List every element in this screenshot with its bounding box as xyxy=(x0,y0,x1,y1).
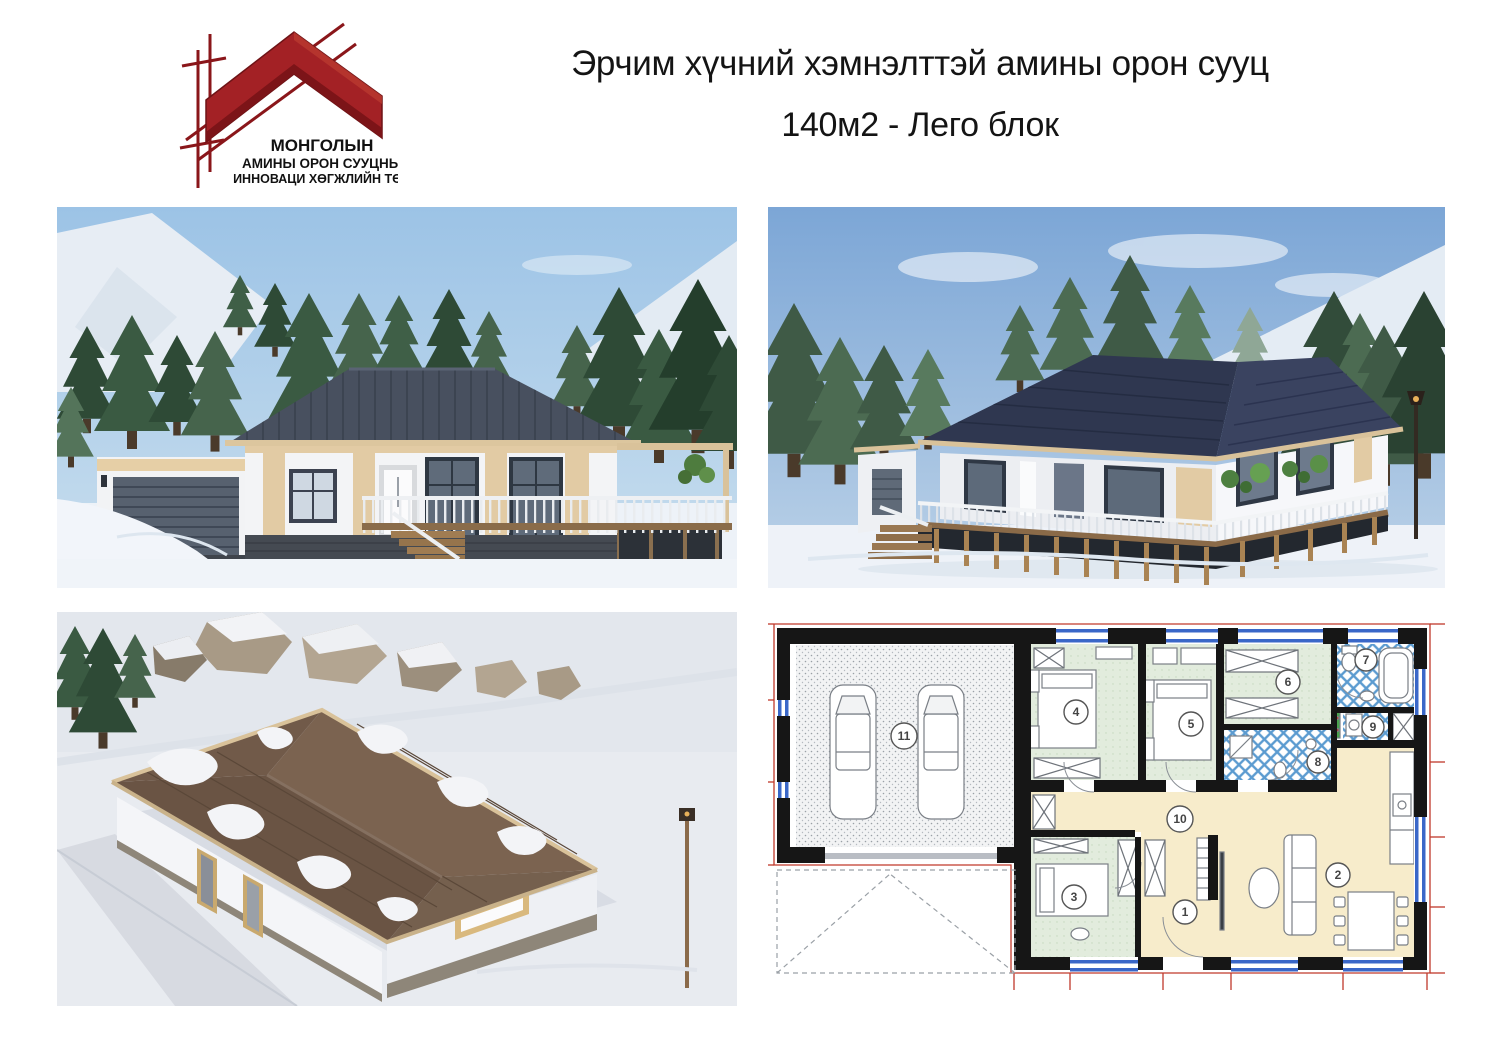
aerial-scene xyxy=(57,612,737,1006)
garage-door-line xyxy=(825,853,997,859)
room-badge-10: 10 xyxy=(1167,806,1193,832)
roof-fascia xyxy=(225,440,641,446)
deck-railing xyxy=(362,496,732,533)
room-number-4: 4 xyxy=(1073,705,1080,719)
window xyxy=(1238,628,1323,644)
room-number-8: 8 xyxy=(1315,755,1322,769)
window xyxy=(1414,817,1427,902)
brochure-page: МОНГОЛЫН АМИНЫ ОРОН СУУЦНЫ ИННОВАЦИ ХӨГЖ… xyxy=(0,0,1500,1060)
room-number-7: 7 xyxy=(1363,653,1370,667)
room-number-10: 10 xyxy=(1173,812,1187,826)
perspective-scene xyxy=(768,207,1445,588)
room-badge-3: 3 xyxy=(1062,885,1086,909)
room-number-6: 6 xyxy=(1285,675,1292,689)
render-aerial-panel xyxy=(57,612,737,1006)
dresser-5 xyxy=(1181,648,1217,664)
room-number-9: 9 xyxy=(1370,720,1377,734)
nightstand-5 xyxy=(1153,648,1177,664)
room-number-1: 1 xyxy=(1182,905,1189,919)
render-front-view-panel xyxy=(57,207,737,588)
room-badge-5: 5 xyxy=(1179,712,1203,736)
tv xyxy=(1220,852,1224,930)
window xyxy=(1414,669,1427,715)
wall-lamp xyxy=(101,475,107,487)
pilaster xyxy=(1176,467,1212,527)
window xyxy=(1348,628,1398,644)
title-line-2: 140м2 - Лего блок xyxy=(430,106,1410,145)
room-badge-6: 6 xyxy=(1276,670,1300,694)
sofa xyxy=(1284,835,1316,935)
car-2 xyxy=(918,685,964,819)
room-badge-11: 11 xyxy=(891,723,917,749)
room-badge-8: 8 xyxy=(1307,751,1329,773)
logo-line3: ИННОВАЦИ ХӨГЖЛИЙН ТӨВ xyxy=(233,171,398,186)
logo-roof-chevron xyxy=(206,32,382,142)
company-logo: МОНГОЛЫН АМИНЫ ОРОН СУУЦНЫ ИННОВАЦИ ХӨГЖ… xyxy=(176,20,398,188)
room-number-2: 2 xyxy=(1335,868,1342,882)
render-perspective-panel xyxy=(768,207,1445,588)
floor-plan-panel: 1 2 3 4 5 6 7 8 9 10 11 xyxy=(768,612,1445,1006)
logo-line2: АМИНЫ ОРОН СУУЦНЫ xyxy=(242,156,398,171)
room-number-5: 5 xyxy=(1188,717,1195,731)
car-1 xyxy=(830,685,876,819)
sink-8 xyxy=(1306,739,1316,749)
logo-line1: МОНГОЛЫН xyxy=(271,136,374,155)
window xyxy=(777,782,790,798)
kitchen-counter xyxy=(1390,752,1414,864)
dining-set xyxy=(1334,892,1408,950)
logo-org-name: МОНГОЛЫН АМИНЫ ОРОН СУУЦНЫ ИННОВАЦИ ХӨГЖ… xyxy=(233,136,398,186)
room-badge-1: 1 xyxy=(1173,900,1197,924)
floor-plan-drawing: 1 2 3 4 5 6 7 8 9 10 11 xyxy=(768,612,1445,1006)
room-number-11: 11 xyxy=(898,729,911,743)
sink-7 xyxy=(1360,691,1374,701)
window xyxy=(1056,628,1108,644)
room-badge-4: 4 xyxy=(1064,700,1088,724)
room-badge-2: 2 xyxy=(1326,863,1350,887)
room-number-3: 3 xyxy=(1071,890,1078,904)
bathtub xyxy=(1379,648,1413,703)
title-line-1: Эрчим хүчний хэмнэлттэй амины орон сууц xyxy=(430,44,1410,84)
coffee-table xyxy=(1249,868,1279,908)
window xyxy=(1070,958,1138,972)
front-view-scene xyxy=(57,207,737,588)
dresser-4 xyxy=(1096,647,1132,659)
pouf xyxy=(1071,928,1089,940)
room-badge-9: 9 xyxy=(1362,716,1384,738)
cloud xyxy=(522,255,632,275)
window xyxy=(1343,958,1403,972)
window xyxy=(1231,958,1298,972)
window xyxy=(1166,628,1218,644)
window xyxy=(777,700,790,716)
room-badge-7: 7 xyxy=(1355,649,1377,671)
